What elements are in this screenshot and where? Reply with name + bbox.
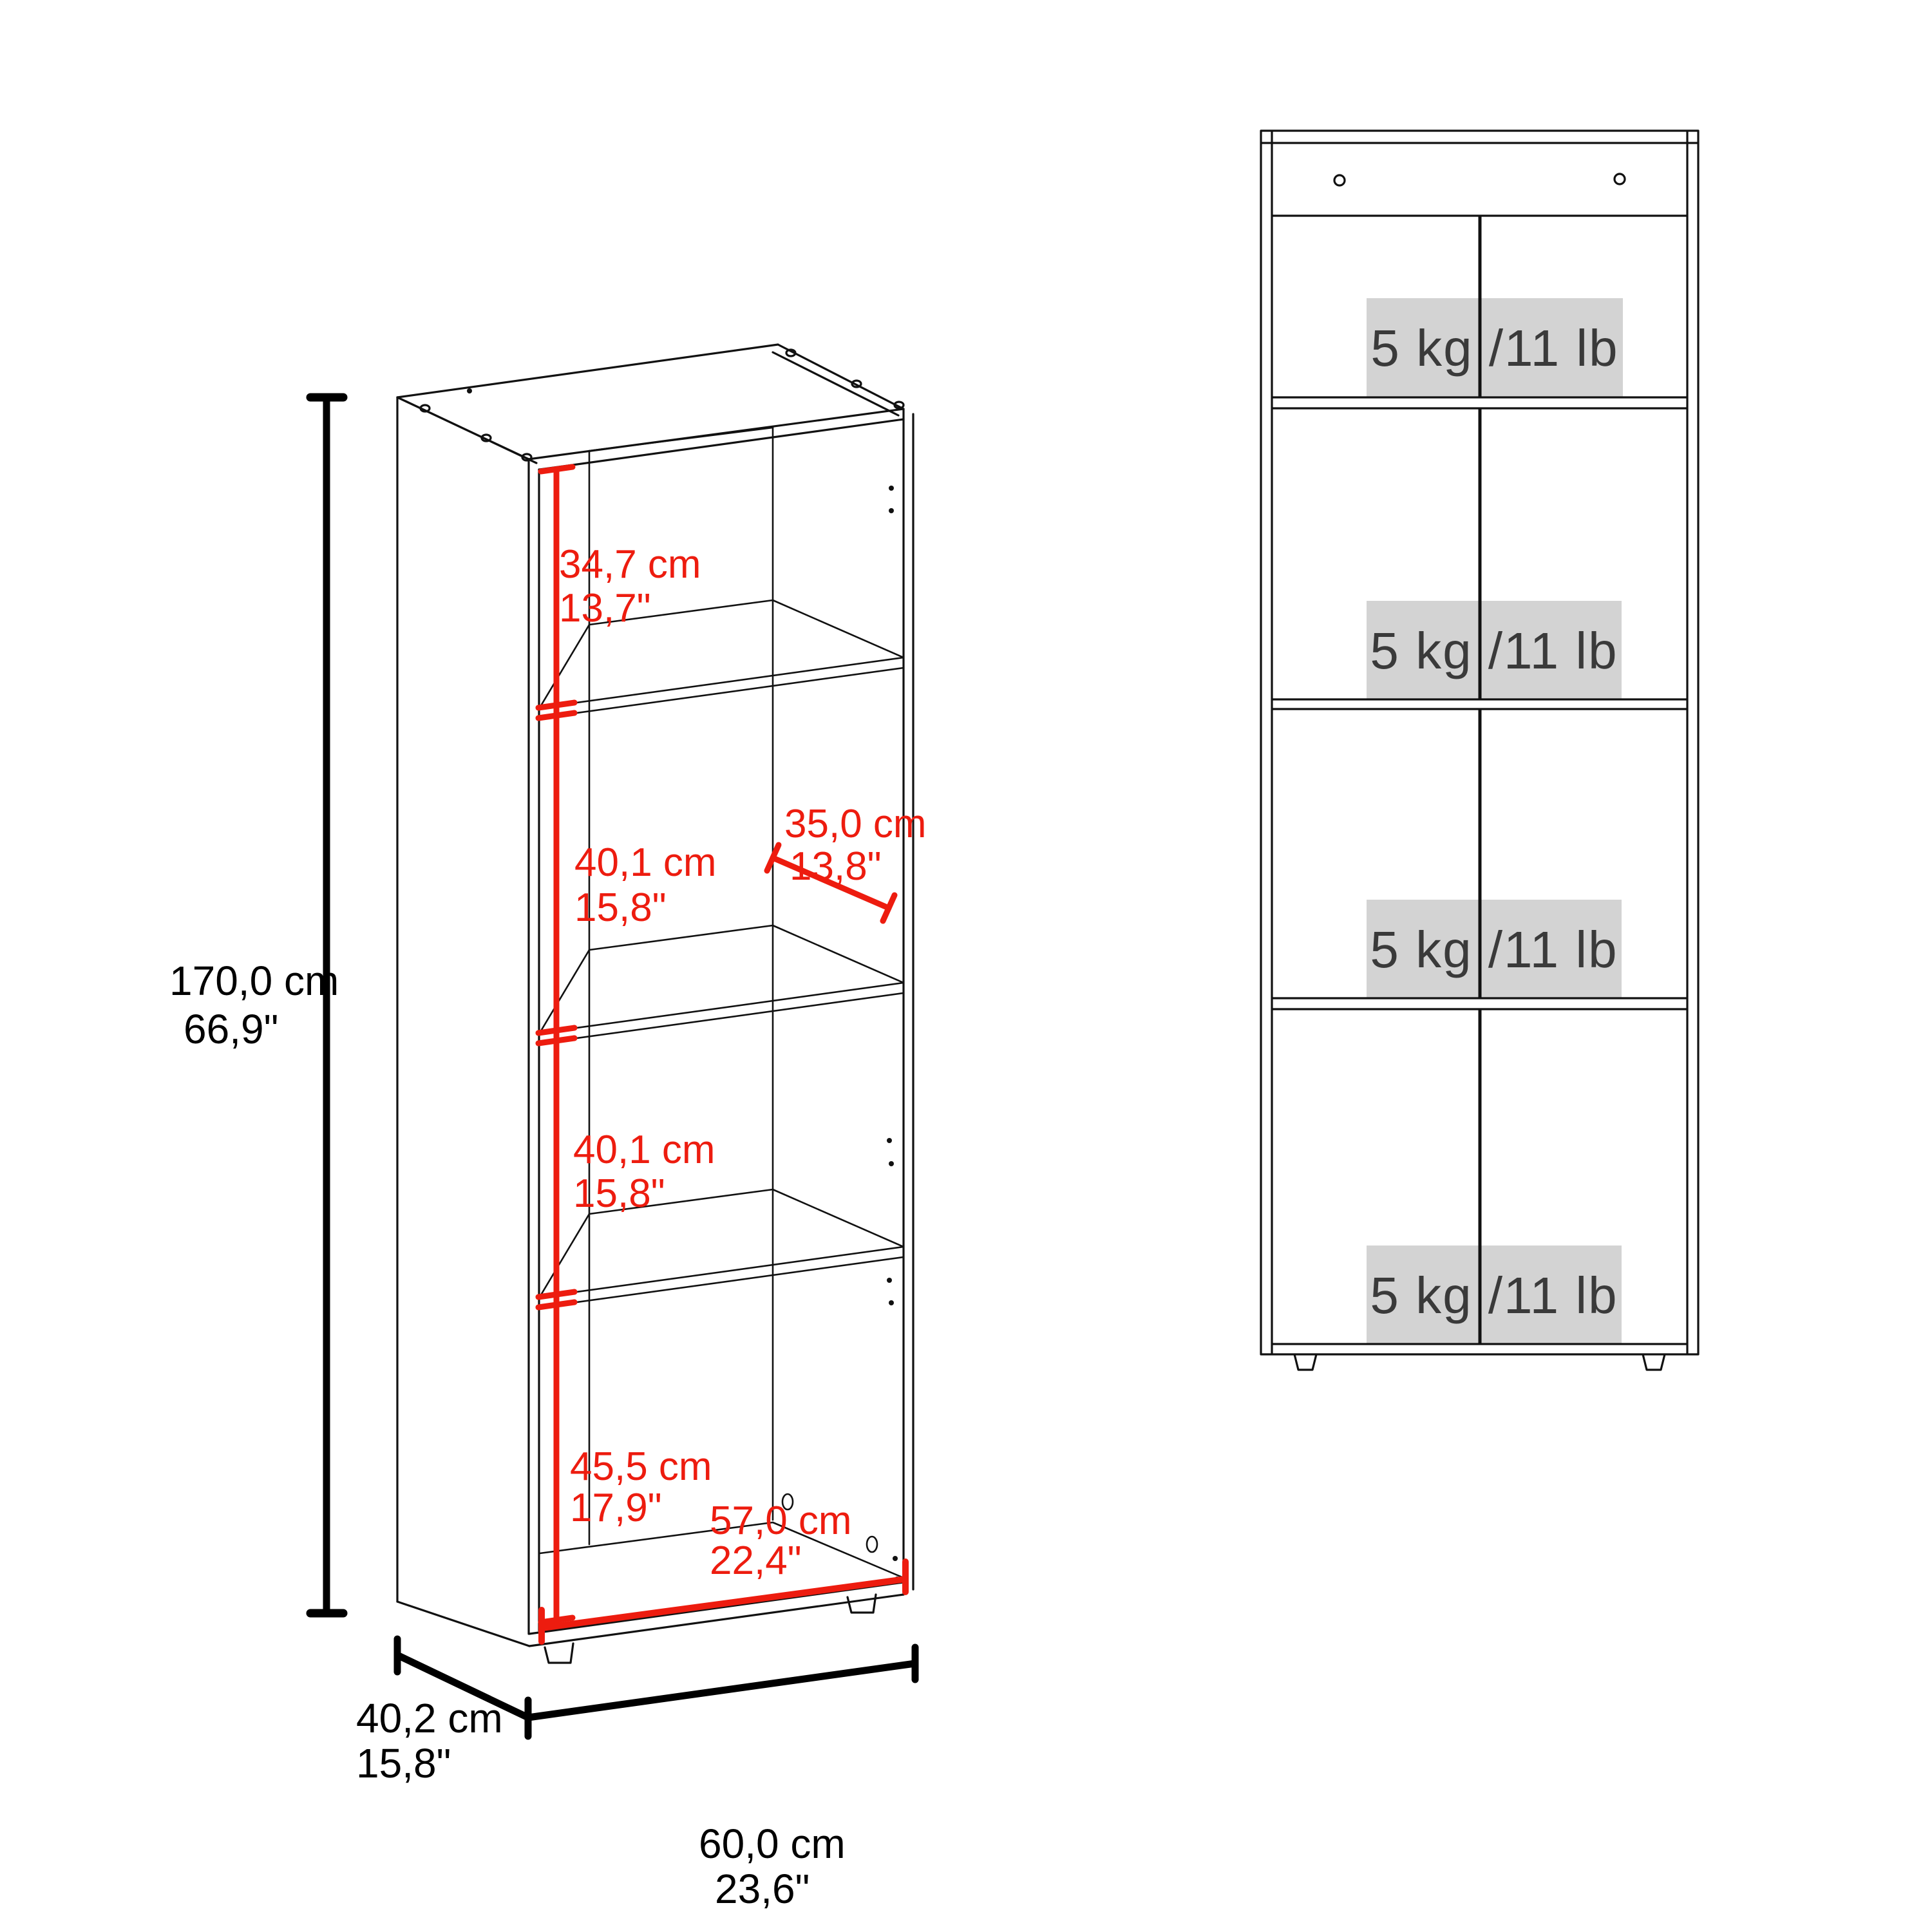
base-depth-cm: 40,2 cm [356, 1695, 503, 1741]
shelf-1-capacity-label: 5 kg /11 lb [1370, 319, 1618, 377]
compartment-2-height-in: 15,8" [574, 885, 667, 930]
compartment-3-height-in: 15,8" [573, 1171, 665, 1216]
shelf-pin-holes [887, 486, 900, 1582]
foot [1294, 1354, 1316, 1370]
compartment-4-height-in: 17,9" [570, 1486, 662, 1530]
inner-width-cm: 57,0 cm [710, 1499, 852, 1543]
screw-hole [467, 388, 472, 393]
overall-height-cm: 170,0 cm [169, 958, 339, 1004]
foot [1643, 1354, 1665, 1370]
screw-hole [1334, 175, 1345, 185]
shelf [540, 925, 904, 1043]
inner-depth-in: 13,8" [790, 844, 882, 889]
shelf-4-capacity-label: 5 kg /11 lb [1370, 1267, 1618, 1324]
diagram-canvas: 34,7 cm 13,7" 40,1 cm 15,8" 35,0 cm 13,8… [0, 0, 1932, 1932]
height-dimension-line [310, 397, 343, 1613]
capacity-badges [1367, 298, 1623, 1344]
front-view: 5 kg /11 lb 5 kg /11 lb 5 kg /11 lb 5 kg… [1261, 131, 1698, 1370]
base-width-in: 23,6" [715, 1866, 810, 1912]
cam-hole [867, 1537, 877, 1552]
compartment-4-height-cm: 45,5 cm [570, 1444, 712, 1489]
compartment-2-height-cm: 40,1 cm [574, 840, 717, 885]
cabinet-top-face [397, 345, 904, 469]
front-view-carcass [1261, 131, 1698, 1370]
capacity-labels: 5 kg /11 lb 5 kg /11 lb 5 kg /11 lb 5 kg… [1370, 319, 1618, 1324]
furniture-dimension-diagram: 34,7 cm 13,7" 40,1 cm 15,8" 35,0 cm 13,8… [0, 0, 1932, 1932]
screw-hole [1615, 174, 1625, 184]
interior-height-dimension-line [538, 467, 574, 1622]
left-view-labels: 34,7 cm 13,7" 40,1 cm 15,8" 35,0 cm 13,8… [169, 542, 927, 1912]
base-width-cm: 60,0 cm [699, 1821, 846, 1867]
overall-height-in: 66,9" [184, 1006, 278, 1052]
base-depth-in: 15,8" [356, 1740, 451, 1786]
compartment-1-height-in: 13,7" [559, 586, 651, 630]
inner-depth-cm: 35,0 cm [784, 802, 927, 846]
inner-width-in: 22,4" [710, 1539, 802, 1583]
compartment-1-height-cm: 34,7 cm [559, 542, 701, 587]
foot [848, 1595, 876, 1613]
foot [545, 1643, 573, 1663]
width-dimension-line [528, 1647, 915, 1736]
shelf-3-capacity-label: 5 kg /11 lb [1370, 921, 1618, 978]
shelf-2-capacity-label: 5 kg /11 lb [1370, 622, 1618, 679]
compartment-3-height-cm: 40,1 cm [573, 1128, 715, 1172]
